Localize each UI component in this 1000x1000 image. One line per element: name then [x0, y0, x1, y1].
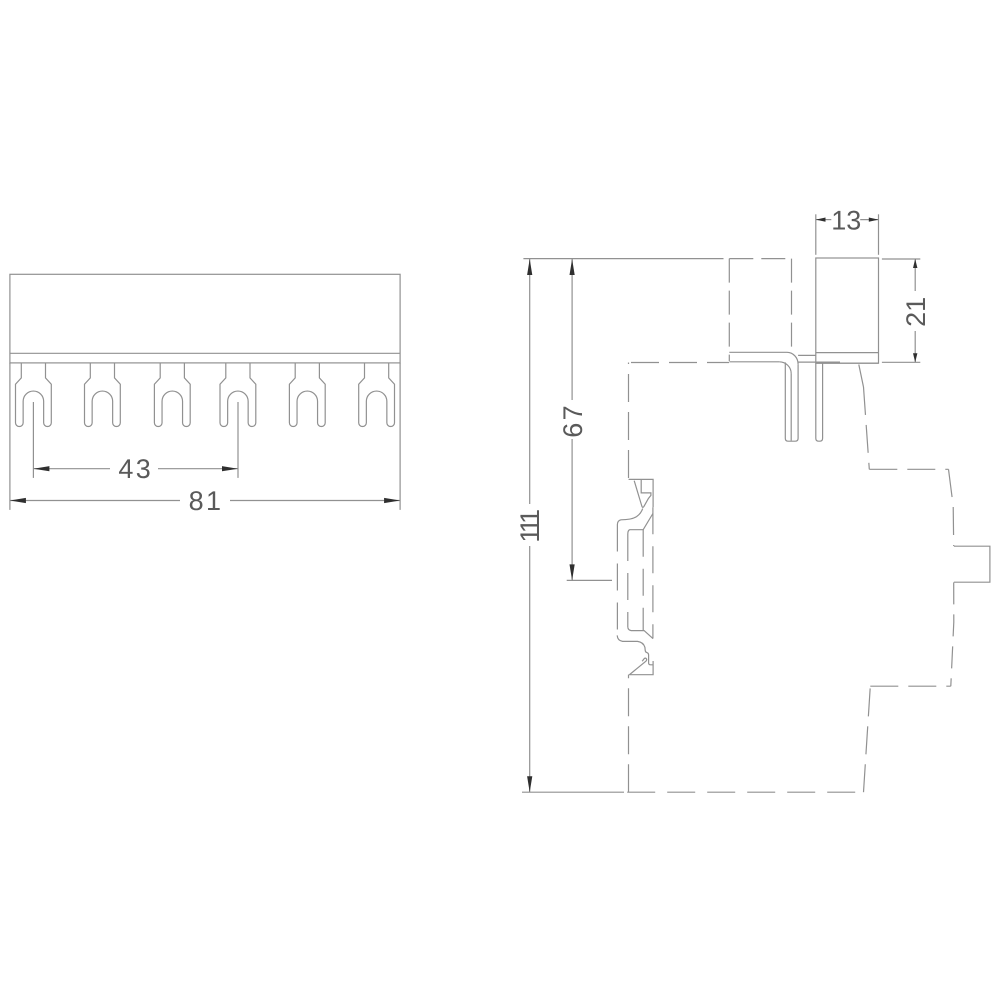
svg-text:81: 81: [189, 486, 224, 516]
svg-text:67: 67: [558, 403, 588, 438]
svg-text:111: 111: [515, 510, 545, 543]
svg-text:13: 13: [831, 206, 861, 236]
svg-text:21: 21: [901, 297, 931, 327]
svg-text:43: 43: [118, 454, 153, 484]
